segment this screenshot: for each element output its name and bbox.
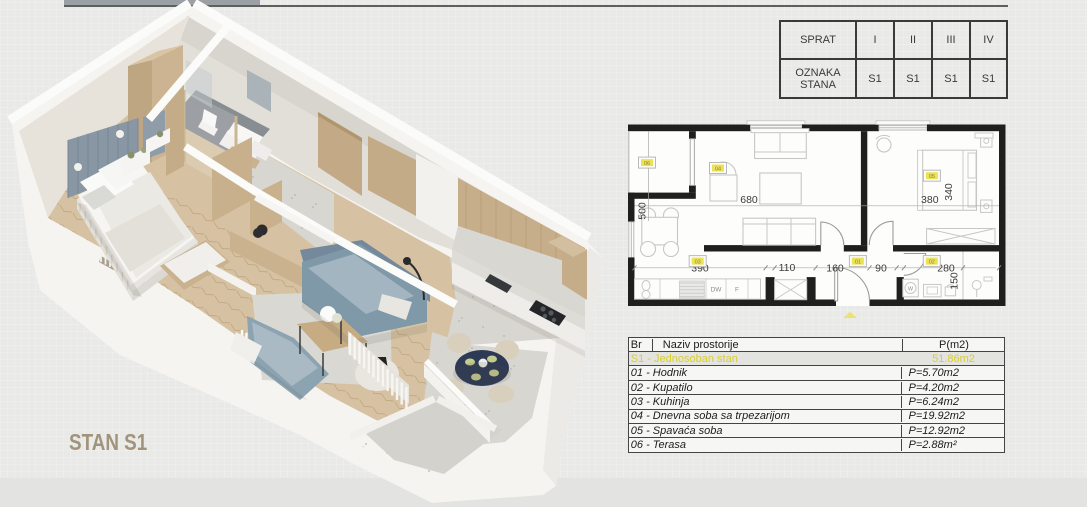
svg-text:04: 04	[715, 167, 721, 173]
svg-text:F: F	[735, 287, 739, 294]
svg-text:340: 340	[943, 183, 955, 201]
svg-text:160: 160	[826, 263, 844, 275]
svg-text:01: 01	[855, 260, 861, 266]
svg-text:680: 680	[740, 194, 758, 206]
svg-text:380: 380	[921, 194, 939, 206]
svg-text:06: 06	[644, 161, 650, 167]
svg-text:02: 02	[929, 260, 935, 266]
svg-text:150: 150	[949, 272, 961, 290]
svg-text:DW: DW	[711, 287, 723, 294]
svg-text:W: W	[908, 287, 914, 293]
svg-text:110: 110	[779, 262, 796, 274]
svg-text:03: 03	[695, 260, 701, 266]
svg-text:500: 500	[637, 202, 649, 220]
svg-text:05: 05	[929, 174, 935, 180]
svg-text:90: 90	[875, 263, 887, 275]
